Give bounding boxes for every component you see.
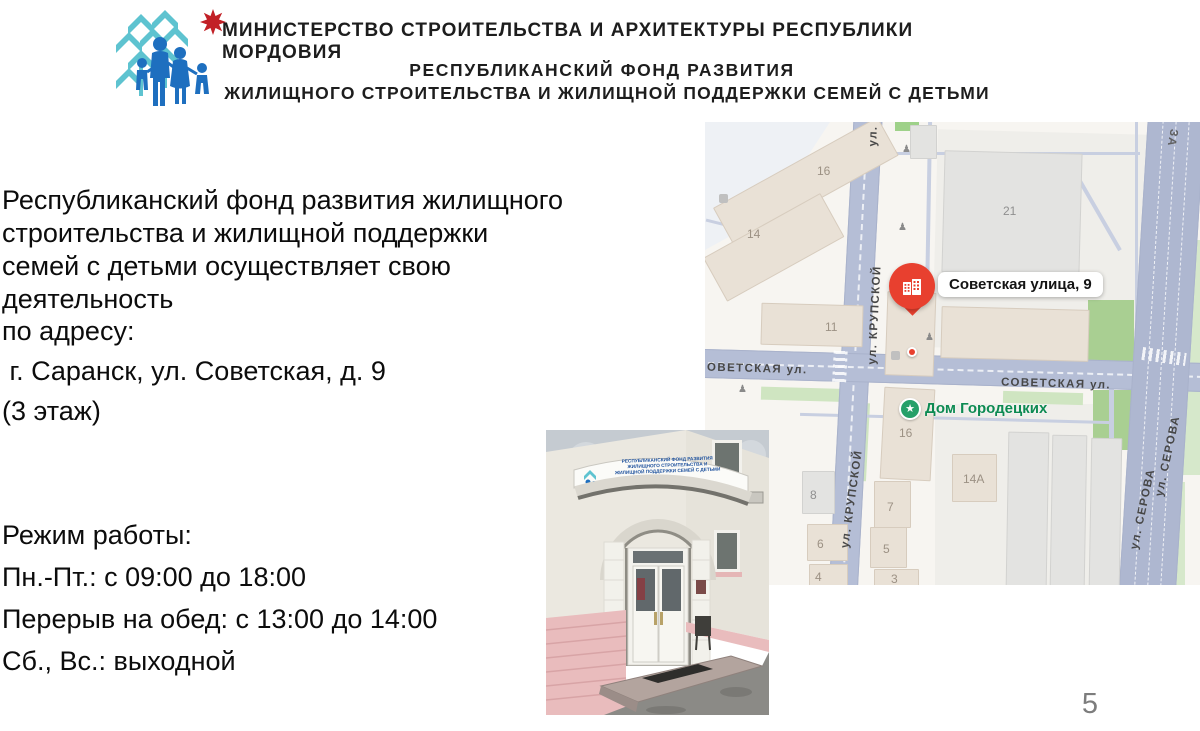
building-number: 16 [899, 426, 912, 440]
map-green-area [1088, 300, 1134, 366]
schedule-line-weekend: Сб., Вс.: выходной [2, 645, 236, 678]
map-pin-icon [889, 263, 935, 309]
poi-marker-icon [891, 351, 900, 360]
building-block [802, 471, 835, 514]
address-label: по адресу: [2, 315, 134, 348]
page-number: 5 [1060, 688, 1120, 721]
monument-icon: ♟ [902, 144, 911, 155]
street-label-krupskoy-fragment: ул. [867, 125, 880, 146]
building-number: 14А [963, 472, 984, 486]
building-block [910, 125, 937, 159]
building-block [940, 306, 1089, 362]
floor-line: (3 этаж) [2, 395, 101, 428]
monument-icon: ♟ [898, 222, 907, 233]
fund-logo [113, 6, 237, 118]
building-number: 4 [815, 570, 822, 584]
logo-family-icon [136, 37, 209, 106]
poi-name-label: Дом Городецких [925, 400, 1047, 417]
building-block [1050, 435, 1088, 585]
entrance-photo: РЕСПУБЛИКАНСКИЙ ФОНД РАЗВИТИЯ ЖИЛИЩНОГО … [546, 430, 769, 715]
location-map: 16 14 21 11 16 14А 8 7 6 5 4 3 ОВЕТСКАЯ … [705, 122, 1200, 585]
building-block [1006, 432, 1050, 585]
schedule-line-weekdays: Пн.-Пт.: с 09:00 до 18:00 [2, 561, 306, 594]
header-fund-title-line2: ЖИЛИЩНОГО СТРОИТЕЛЬСТВА И ЖИЛИЩНОЙ ПОДДЕ… [222, 83, 992, 104]
crosswalk [832, 348, 848, 383]
address-line: г. Саранск, ул. Советская, д. 9 [2, 355, 386, 388]
schedule-title: Режим работы: [2, 519, 192, 552]
photo-entrance-door [633, 566, 684, 662]
pin-address-label: Советская улица, 9 [938, 272, 1103, 297]
header-ministry-title: МИНИСТЕРСТВО СТРОИТЕЛЬСТВА И АРХИТЕКТУРЫ… [222, 20, 982, 64]
building-block [760, 303, 863, 348]
intro-paragraph: Республиканский фонд развития жилищного … [2, 184, 682, 316]
building-number: 14 [747, 227, 760, 241]
schedule-line-lunch: Перерыв на обед: с 13:00 до 14:00 [2, 603, 437, 636]
pin-location-dot [907, 347, 917, 357]
building-number: 5 [883, 542, 890, 556]
poi-marker-icon [719, 194, 728, 203]
building-number: 16 [817, 164, 830, 178]
header-fund-title-line1: РЕСПУБЛИКАНСКИЙ ФОНД РАЗВИТИЯ [222, 60, 982, 81]
building-number: 6 [817, 537, 824, 551]
monument-icon: ♟ [925, 332, 934, 343]
building-number: 3 [891, 572, 898, 585]
building-number: 7 [887, 500, 894, 514]
monument-icon: ♟ [738, 384, 747, 395]
logo-graphic [113, 6, 237, 118]
pin-building-glyph [901, 275, 923, 297]
photo-plaque [696, 580, 706, 594]
building-number: 21 [1003, 204, 1016, 218]
building-number: 8 [810, 488, 817, 502]
poi-star-icon: ★ [899, 398, 921, 420]
building-block [1089, 438, 1123, 585]
street-label-sovetskaya: СОВЕТСКАЯ ул. [1001, 376, 1111, 391]
building-number: 11 [825, 320, 837, 334]
